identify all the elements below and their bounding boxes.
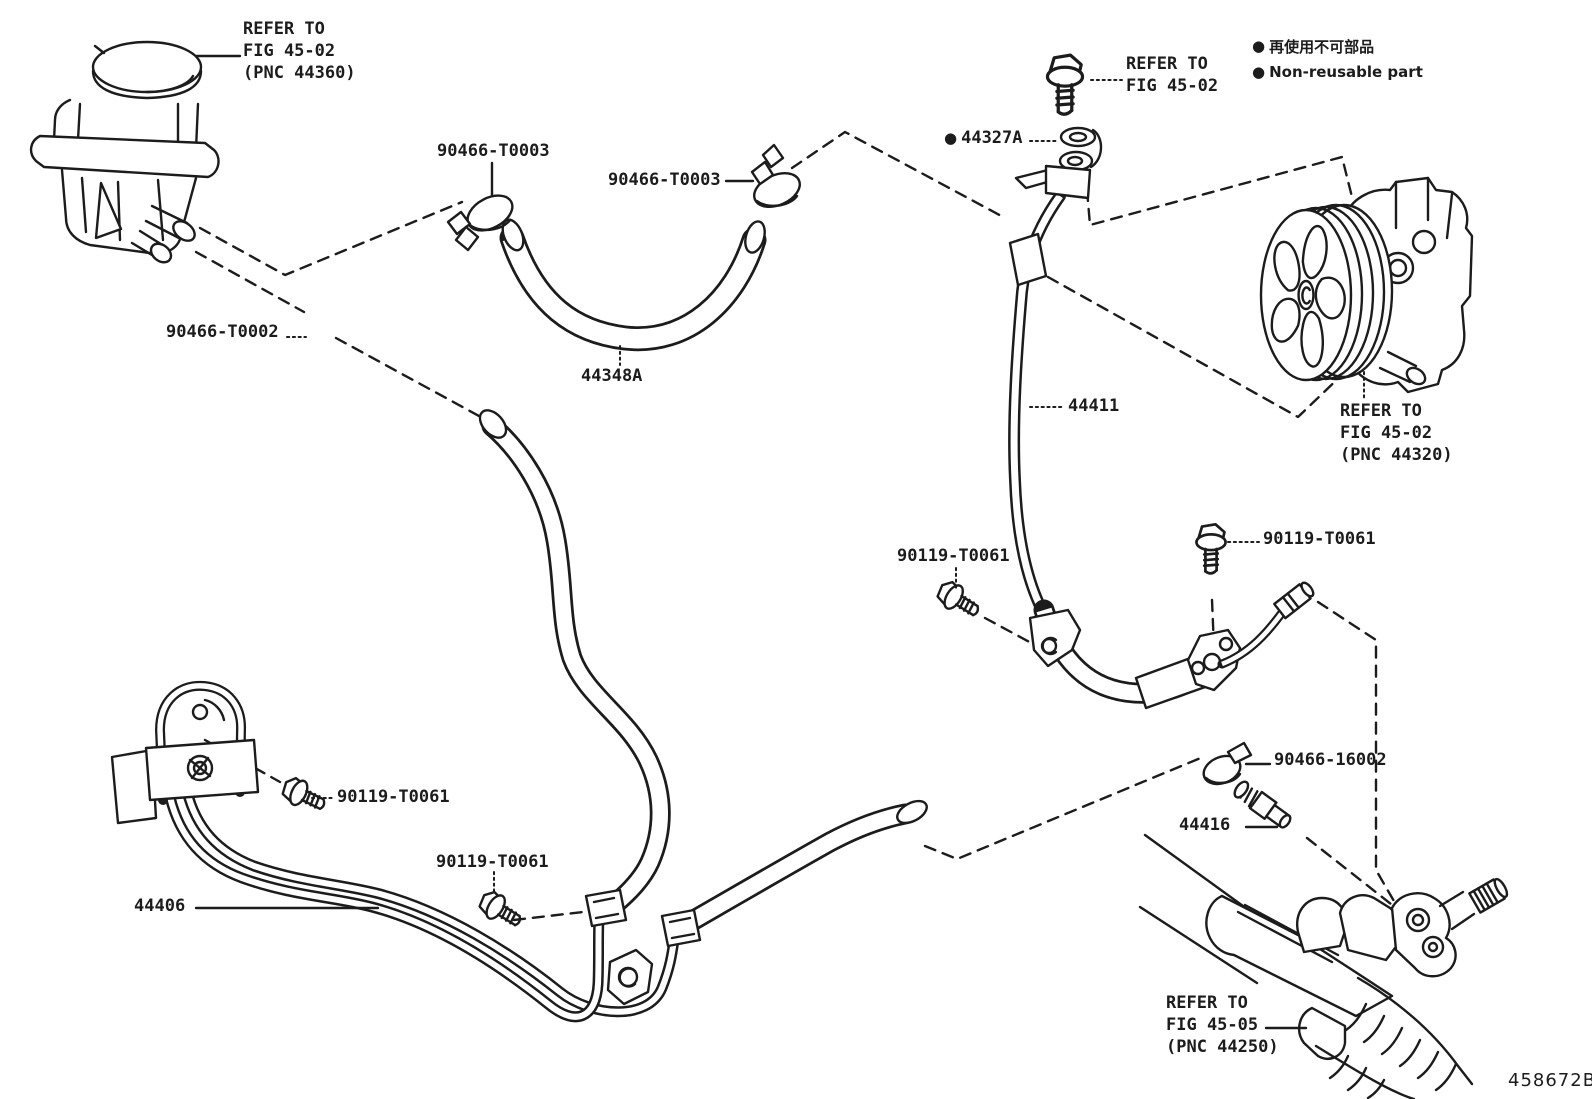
bolt-90119-mid — [933, 578, 984, 623]
legend: ● 再使用不可部品 ● Non-reusable part — [1252, 33, 1423, 85]
steering-gear — [1140, 835, 1510, 1099]
legend-row-japanese: ● 再使用不可部品 — [1252, 33, 1423, 59]
clamp-44327a — [1060, 128, 1101, 170]
label-90466-t0003-right: 90466-T0003 — [608, 170, 721, 190]
label-refer-fig45-02-top: REFER TO FIG 45-02 — [1126, 53, 1218, 97]
label-90119-t0061-center: 90119-T0061 — [436, 852, 549, 872]
bolt-90119-center — [475, 888, 526, 933]
reservoir-tank — [31, 42, 218, 266]
label-44416: 44416 — [1179, 815, 1230, 835]
label-90119-t0061-right: 90119-T0061 — [1263, 529, 1376, 549]
diagram-line-art — [0, 0, 1592, 1099]
legend-text-english: Non-reusable part — [1269, 63, 1423, 81]
diagram-number: 458672B — [1508, 1070, 1592, 1091]
label-refer-fig45-05-pnc44250: REFER TO FIG 45-05 (PNC 44250) — [1166, 992, 1279, 1058]
label-90466-16002: 90466-16002 — [1274, 750, 1387, 770]
label-90466-t0002: 90466-T0002 — [166, 322, 279, 342]
label-90119-t0061-left: 90119-T0061 — [337, 787, 450, 807]
flange-bolt-top — [1047, 55, 1082, 114]
bolt-90119-left — [279, 774, 330, 817]
label-refer-fig45-02-pnc44320: REFER TO FIG 45-02 (PNC 44320) — [1340, 400, 1453, 466]
clamp-90466-t0003-right — [749, 145, 805, 213]
label-90466-t0003-left: 90466-T0003 — [437, 141, 550, 161]
non-reusable-bullet: ● — [944, 129, 957, 147]
label-44348a: 44348A — [581, 366, 642, 386]
label-44411: 44411 — [1068, 396, 1119, 416]
legend-row-english: ● Non-reusable part — [1252, 59, 1423, 85]
label-90119-t0061-mid: 90119-T0061 — [897, 546, 1010, 566]
label-refer-fig45-02-pnc44360: REFER TO FIG 45-02 (PNC 44360) — [243, 18, 356, 84]
power-steering-pump — [1261, 178, 1472, 392]
label-44406: 44406 — [134, 896, 185, 916]
non-reusable-bullet: ● — [1252, 63, 1265, 81]
bolt-90119-right — [1196, 524, 1225, 573]
legend-text-japanese: 再使用不可部品 — [1269, 36, 1374, 57]
hose-44348a — [499, 217, 768, 339]
non-reusable-bullet: ● — [1252, 37, 1265, 55]
union-44416 — [1231, 779, 1294, 832]
parts-diagram-page: REFER TO FIG 45-02 (PNC 44360) 90466-T00… — [0, 0, 1592, 1099]
label-44327a: ●44327A — [944, 128, 1023, 148]
